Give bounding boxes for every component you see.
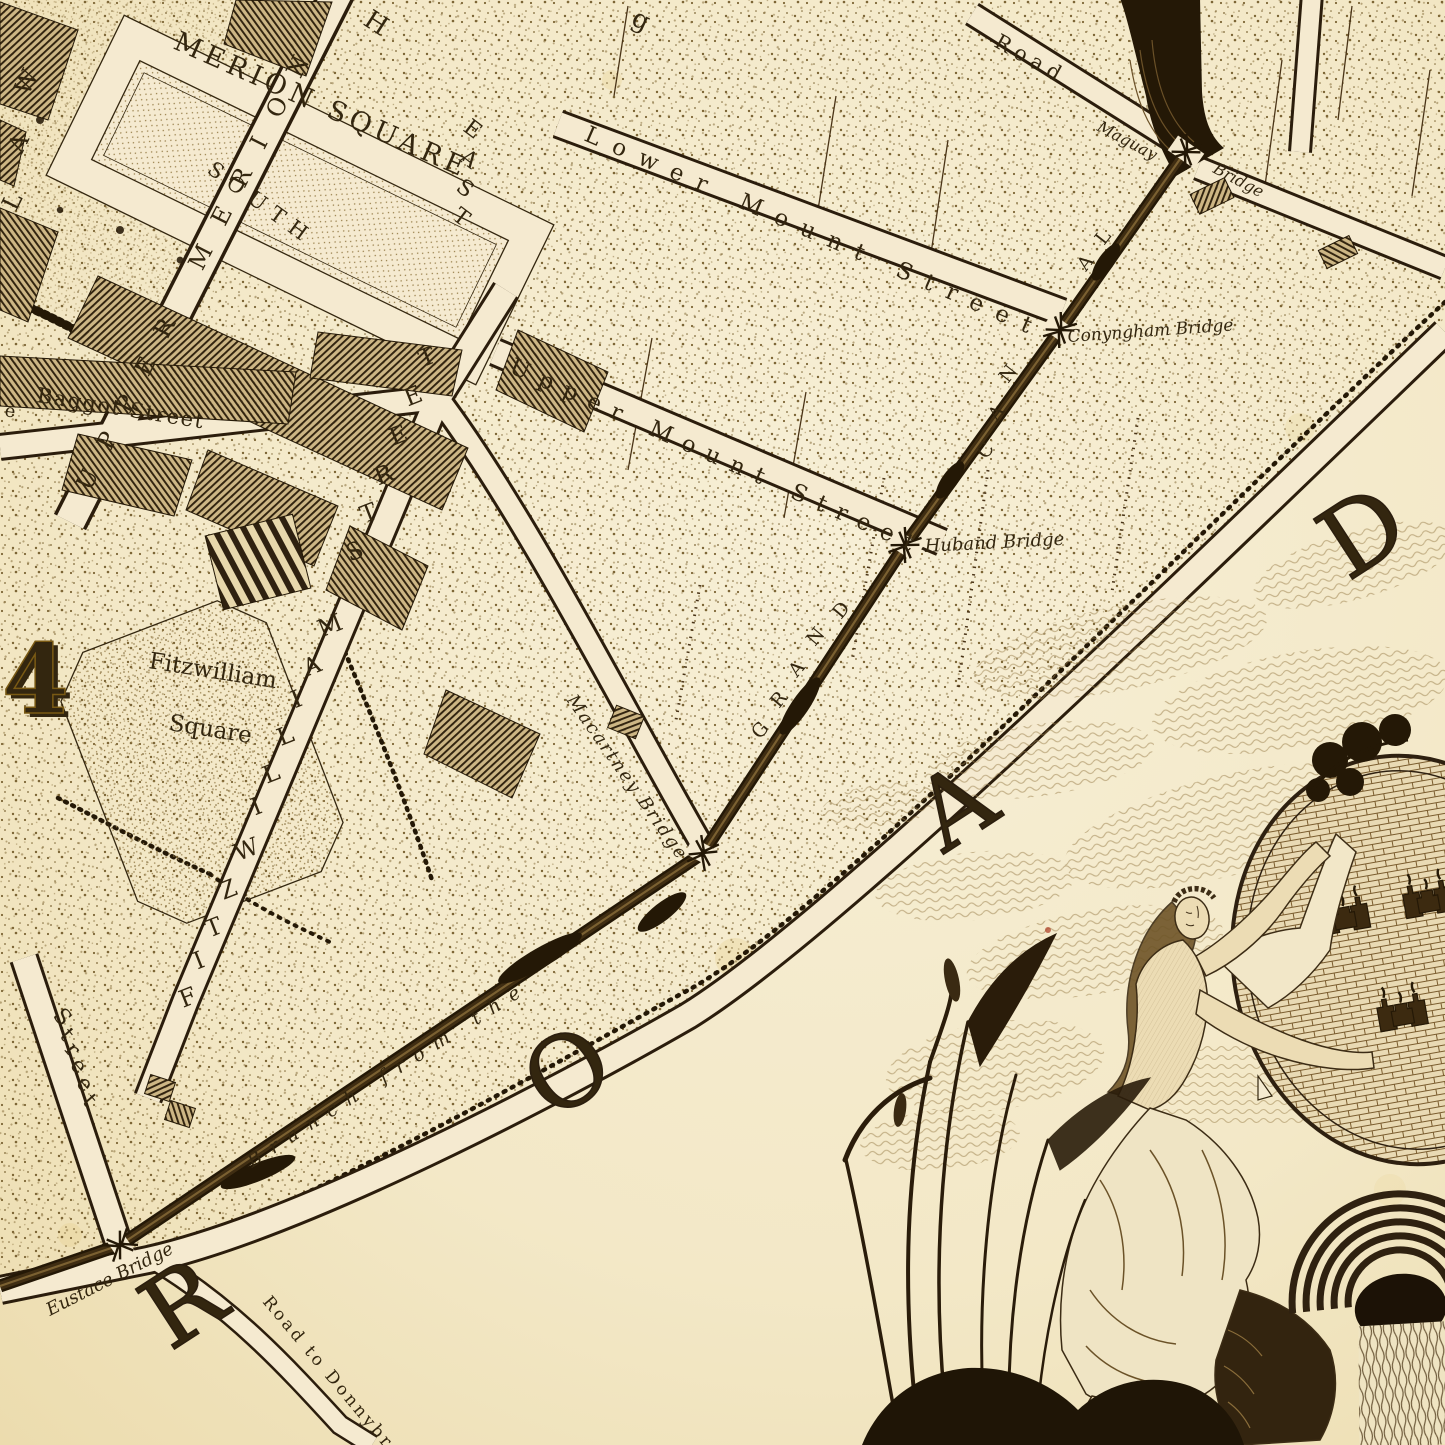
plate-number-numeral: 4: [2, 623, 69, 736]
historic-dublin-map-engraving: MERION SQUARE SOUTH EAST H g LAW UPPER M…: [0, 0, 1445, 1445]
map-canvas: MERION SQUARE SOUTH EAST H g LAW UPPER M…: [0, 0, 1445, 1445]
waterfall: [1346, 1317, 1445, 1445]
plate-number: 4 4: [2, 623, 74, 740]
